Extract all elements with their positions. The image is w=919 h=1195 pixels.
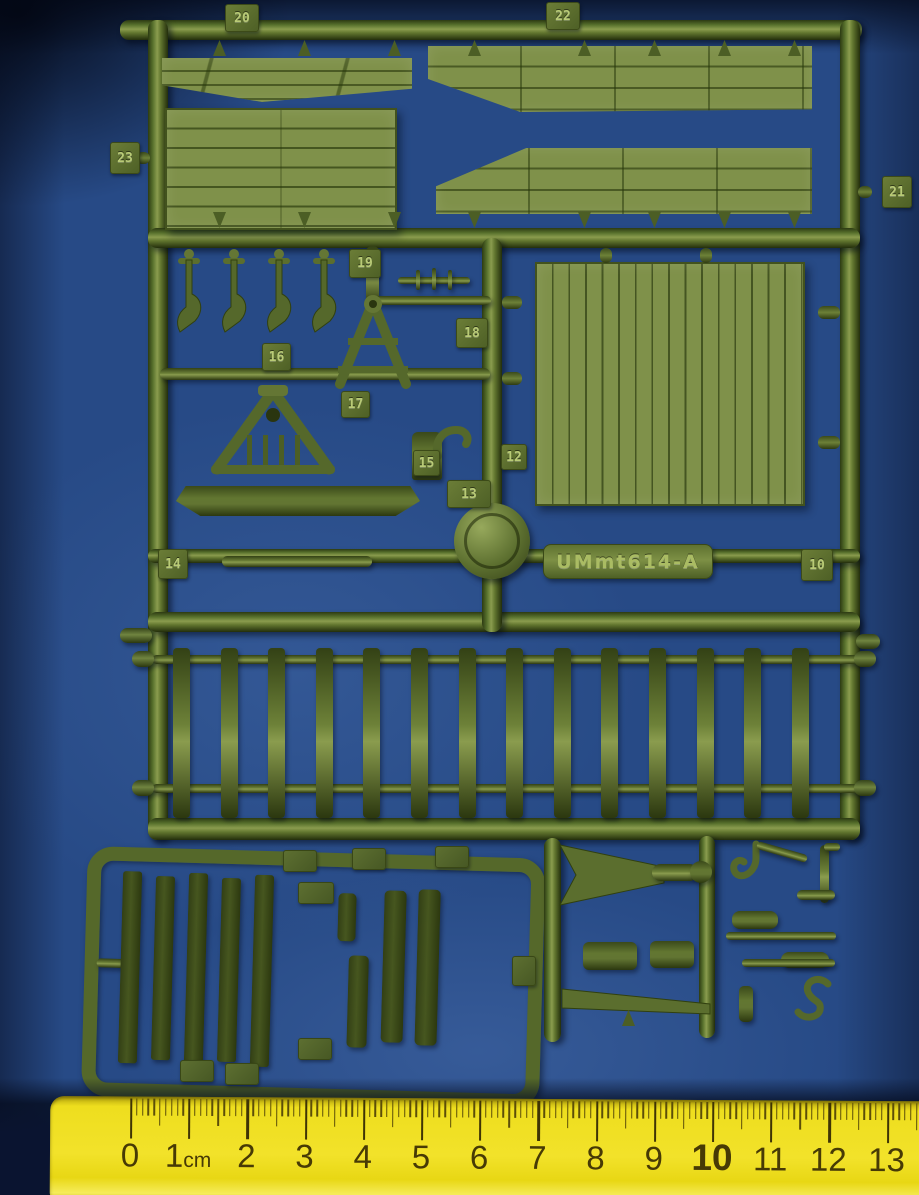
sprue-gate bbox=[388, 40, 401, 56]
ruler-tick bbox=[875, 1103, 876, 1120]
ruler-tick bbox=[241, 1099, 242, 1116]
ruler-tick bbox=[369, 1100, 370, 1117]
ruler-tick bbox=[206, 1099, 207, 1116]
ruler-tick bbox=[479, 1101, 481, 1141]
rod-part bbox=[726, 932, 836, 940]
wheel-part bbox=[454, 503, 530, 579]
ruler-tick bbox=[404, 1100, 405, 1117]
ruler-tick bbox=[229, 1099, 230, 1116]
ruler-tick bbox=[683, 1102, 685, 1129]
tail-board-part bbox=[162, 58, 412, 102]
ruler-tick bbox=[520, 1101, 521, 1118]
ruler-tick bbox=[532, 1101, 533, 1118]
part-number-tab-20: 20 bbox=[225, 4, 259, 32]
blank-number-tab bbox=[225, 1063, 259, 1085]
stringer-lug bbox=[854, 651, 876, 667]
rod-part bbox=[222, 556, 372, 567]
ruler-tick bbox=[491, 1101, 492, 1118]
ruler-tick bbox=[759, 1102, 760, 1119]
ruler-tick bbox=[811, 1103, 812, 1120]
splined-rod-tick bbox=[448, 270, 452, 290]
ruler-tick bbox=[293, 1099, 294, 1116]
ruler-tick bbox=[828, 1103, 830, 1143]
ruler-tick bbox=[893, 1103, 894, 1120]
part-number-tab-22: 22 bbox=[546, 2, 580, 30]
ruler-tick bbox=[549, 1101, 550, 1118]
blank-number-tab bbox=[512, 956, 536, 986]
sprue-stub bbox=[856, 634, 880, 649]
stake-part bbox=[744, 648, 761, 818]
ruler-tick bbox=[148, 1099, 149, 1116]
ruler-tick bbox=[497, 1101, 498, 1118]
ruler-tick bbox=[537, 1101, 539, 1141]
ruler-tick bbox=[613, 1101, 614, 1118]
ruler-tick bbox=[671, 1102, 672, 1119]
splined-rod-tick bbox=[416, 270, 420, 290]
stake-pocket-part bbox=[172, 250, 206, 334]
ruler-tick bbox=[363, 1100, 365, 1140]
ruler-tick bbox=[328, 1100, 329, 1117]
ruler-tick bbox=[794, 1103, 795, 1120]
ruler-tick bbox=[526, 1101, 527, 1118]
ruler: 01cm2345678910111213 bbox=[50, 1096, 919, 1195]
ruler-tick bbox=[788, 1103, 789, 1120]
stake-pocket-part bbox=[307, 250, 341, 334]
side-board-part-upper bbox=[428, 46, 812, 112]
ruler-tick bbox=[695, 1102, 696, 1119]
sprue-nub bbox=[818, 436, 840, 449]
splined-rod-tick bbox=[432, 268, 436, 290]
ruler-tick bbox=[130, 1098, 132, 1138]
channel-part-small bbox=[346, 955, 369, 1048]
bracket-flag bbox=[824, 843, 840, 851]
small-block-part bbox=[337, 893, 356, 941]
stake-part bbox=[268, 648, 285, 818]
ruler-tick bbox=[858, 1103, 860, 1130]
ruler-tick bbox=[357, 1100, 358, 1117]
ruler-tick bbox=[887, 1103, 889, 1143]
part-number-tab-12: 12 bbox=[501, 444, 527, 470]
ruler-tick bbox=[508, 1101, 510, 1128]
sprue-nub bbox=[858, 186, 872, 198]
block-part bbox=[650, 941, 694, 968]
ruler-tick bbox=[869, 1103, 870, 1120]
ruler-tick bbox=[444, 1100, 445, 1117]
ruler-tick bbox=[590, 1101, 591, 1118]
ruler-tick bbox=[223, 1099, 224, 1116]
wedge-part bbox=[562, 982, 710, 1016]
ruler-tick bbox=[666, 1102, 667, 1119]
ruler-tick bbox=[386, 1100, 387, 1117]
ruler-tick bbox=[474, 1101, 475, 1118]
ruler-tick bbox=[753, 1102, 754, 1119]
ruler-tick bbox=[380, 1100, 381, 1117]
ruler-tick bbox=[450, 1100, 452, 1127]
cluster-runner-left bbox=[544, 838, 561, 1042]
sprue-runner-3 bbox=[148, 612, 860, 632]
blank-number-tab bbox=[435, 846, 469, 868]
sprue-nub bbox=[502, 296, 522, 309]
ruler-tick bbox=[718, 1102, 719, 1119]
ruler-tick bbox=[596, 1101, 598, 1141]
stake-part bbox=[459, 648, 476, 818]
stringer-lug bbox=[132, 651, 154, 667]
ruler-tick bbox=[864, 1103, 865, 1120]
stringer-lug bbox=[132, 780, 154, 796]
rod-part bbox=[742, 959, 835, 967]
ruler-tick bbox=[316, 1100, 317, 1117]
photo-of-model-kit-sprue: UMmt614-A 01cm2345678910111213 2 bbox=[0, 0, 919, 1195]
ruler-tick bbox=[735, 1102, 736, 1119]
ruler-tick bbox=[770, 1102, 772, 1142]
part-number-tab-14: 14 bbox=[158, 549, 188, 579]
stake-part bbox=[506, 648, 523, 818]
ruler-tick bbox=[648, 1102, 649, 1119]
part-number-tab-16: 16 bbox=[262, 343, 291, 371]
ruler-tick bbox=[171, 1099, 172, 1116]
channel-part bbox=[414, 889, 440, 1046]
ruler-tick bbox=[602, 1101, 603, 1118]
ruler-tick bbox=[299, 1100, 300, 1117]
hitch-knob bbox=[690, 861, 712, 883]
stake-pocket-part bbox=[262, 250, 296, 334]
blank-number-tab bbox=[298, 882, 334, 904]
wall-panel-part bbox=[535, 262, 805, 506]
ruler-tick bbox=[351, 1100, 352, 1117]
ruler-tick bbox=[258, 1099, 259, 1116]
part-number-tab-13: 13 bbox=[447, 480, 491, 508]
boat-shaped-part bbox=[176, 486, 420, 516]
ruler-tick bbox=[177, 1099, 178, 1116]
stake-part bbox=[411, 648, 428, 818]
ruler-tick bbox=[433, 1100, 434, 1117]
stake-part bbox=[554, 648, 571, 818]
ruler-tick bbox=[410, 1100, 411, 1117]
ruler-tick bbox=[183, 1099, 184, 1116]
sprue-runner-bottom bbox=[148, 818, 860, 840]
ruler-tick bbox=[287, 1099, 288, 1116]
stake-part bbox=[601, 648, 618, 818]
ruler-tick bbox=[188, 1099, 190, 1139]
ruler-tick bbox=[270, 1099, 271, 1116]
stake-part bbox=[697, 648, 714, 818]
ruler-tick bbox=[846, 1103, 847, 1120]
ruler-tick bbox=[631, 1102, 632, 1119]
ruler-tick bbox=[677, 1102, 678, 1119]
ruler-tick bbox=[799, 1103, 801, 1130]
part-number-tab-18: 18 bbox=[456, 318, 488, 348]
ruler-tick bbox=[276, 1099, 278, 1126]
ruler-tick bbox=[485, 1101, 486, 1118]
ruler-tick bbox=[805, 1103, 806, 1120]
blank-number-tab bbox=[298, 1038, 332, 1060]
ruler-tick bbox=[235, 1099, 236, 1116]
stringer-lug bbox=[854, 780, 876, 796]
stake-pocket-part bbox=[217, 250, 251, 334]
part-number-tab-23: 23 bbox=[110, 142, 140, 174]
ruler-tick bbox=[503, 1101, 504, 1118]
stake-part bbox=[363, 648, 380, 818]
ruler-tick bbox=[427, 1100, 428, 1117]
ruler-tick bbox=[834, 1103, 835, 1120]
ruler-tick bbox=[741, 1102, 743, 1129]
ruler-tick bbox=[916, 1103, 918, 1130]
sprue-nub bbox=[502, 372, 522, 385]
ruler-tick bbox=[904, 1103, 905, 1120]
ruler-tick bbox=[246, 1099, 248, 1139]
ruler-tick bbox=[456, 1100, 457, 1117]
ruler-tick bbox=[625, 1102, 627, 1129]
s-hook-part bbox=[792, 976, 832, 1020]
sprue-gate bbox=[718, 212, 731, 228]
ruler-label-13: 13 bbox=[846, 1141, 919, 1179]
ruler-tick bbox=[747, 1102, 748, 1119]
ruler-tick bbox=[898, 1103, 899, 1120]
blank-number-tab bbox=[352, 848, 386, 870]
ruler-tick bbox=[282, 1099, 283, 1116]
ruler-tick bbox=[322, 1100, 323, 1117]
ruler-tick bbox=[701, 1102, 702, 1119]
ruler-tick bbox=[852, 1103, 853, 1120]
ruler-tick bbox=[555, 1101, 556, 1118]
ruler-tick bbox=[573, 1101, 574, 1118]
ruler-tick bbox=[561, 1101, 562, 1118]
ruler-tick bbox=[334, 1100, 336, 1127]
sprue-gate bbox=[298, 40, 311, 56]
stake-part bbox=[792, 648, 809, 818]
ruler-tick bbox=[194, 1099, 195, 1116]
muffler-part bbox=[732, 911, 778, 929]
ruler-tick bbox=[584, 1101, 585, 1118]
ruler-tick bbox=[153, 1099, 154, 1116]
ruler-tick bbox=[706, 1102, 707, 1119]
sprue-gate bbox=[213, 40, 226, 56]
sprue-runner-right bbox=[840, 20, 860, 840]
ruler-tick bbox=[159, 1099, 161, 1126]
plank-panel-part bbox=[165, 108, 397, 230]
ruler-tick bbox=[462, 1101, 463, 1118]
ruler-tick bbox=[637, 1102, 638, 1119]
sprue-gate bbox=[648, 212, 661, 228]
ruler-tick bbox=[421, 1100, 423, 1140]
stake-part bbox=[221, 648, 238, 818]
ruler-tick bbox=[578, 1101, 579, 1118]
part-number-tab-19: 19 bbox=[349, 249, 381, 278]
ruler-tick bbox=[910, 1103, 911, 1120]
ruler-tick bbox=[439, 1100, 440, 1117]
ruler-tick bbox=[607, 1101, 608, 1118]
ruler-tick bbox=[375, 1100, 376, 1117]
ruler-tick bbox=[567, 1101, 569, 1128]
sprue-runner-2 bbox=[148, 228, 860, 248]
ruler-tick bbox=[165, 1099, 166, 1116]
ruler-tick bbox=[817, 1103, 818, 1120]
ruler-tick bbox=[654, 1102, 656, 1142]
blank-number-tab bbox=[283, 850, 317, 872]
flanged-bar-part bbox=[797, 890, 835, 900]
part-number-tab-10: 10 bbox=[801, 549, 833, 581]
mini-runner-horizontal bbox=[160, 368, 490, 380]
sprue-gate bbox=[578, 212, 591, 228]
part-number-tab-21: 21 bbox=[882, 176, 912, 208]
ruler-tick bbox=[340, 1100, 341, 1117]
clevis-part bbox=[739, 986, 753, 1022]
sprue-nub bbox=[818, 306, 840, 319]
sprue-nub bbox=[700, 248, 712, 263]
ruler-tick bbox=[200, 1099, 201, 1116]
ruler-tick bbox=[311, 1100, 312, 1117]
ruler-tick bbox=[392, 1100, 394, 1127]
channel-part bbox=[381, 890, 407, 1043]
sprue-gate bbox=[468, 212, 481, 228]
block-part bbox=[583, 942, 637, 970]
ruler-tick bbox=[543, 1101, 544, 1118]
ruler-tick bbox=[765, 1102, 766, 1119]
ruler-tick bbox=[660, 1102, 661, 1119]
blank-number-tab bbox=[180, 1060, 214, 1082]
ruler-tick bbox=[346, 1100, 347, 1117]
ruler-tick bbox=[305, 1100, 307, 1140]
stake-part bbox=[316, 648, 333, 818]
part-number-tab-17: 17 bbox=[341, 391, 370, 418]
ruler-tick bbox=[514, 1101, 515, 1118]
side-board-part-lower bbox=[436, 148, 812, 214]
ruler-tick bbox=[252, 1099, 253, 1116]
ruler-tick bbox=[823, 1103, 824, 1120]
a-frame-support-part bbox=[328, 294, 418, 390]
ruler-tick bbox=[136, 1099, 137, 1116]
ruler-tick bbox=[689, 1102, 690, 1119]
sprue-nub bbox=[600, 248, 612, 263]
ruler-tick bbox=[724, 1102, 725, 1119]
sprue-gate bbox=[788, 212, 801, 228]
bogie-frame-part bbox=[203, 385, 343, 483]
ruler-tick bbox=[619, 1101, 620, 1118]
stake-part bbox=[173, 648, 190, 818]
stake-part bbox=[649, 648, 666, 818]
ruler-tick bbox=[468, 1101, 469, 1118]
ruler-tick bbox=[881, 1103, 882, 1120]
sprue-stub bbox=[120, 628, 152, 643]
ruler-tick bbox=[415, 1100, 416, 1117]
mold-plate: UMmt614-A bbox=[543, 544, 713, 579]
ruler-tick bbox=[782, 1102, 783, 1119]
ruler-tick bbox=[776, 1102, 777, 1119]
ruler-tick bbox=[840, 1103, 841, 1120]
ruler-tick bbox=[217, 1099, 219, 1126]
part-number-tab-15: 15 bbox=[413, 450, 440, 476]
ruler-tick bbox=[264, 1099, 265, 1116]
ruler-tick bbox=[642, 1102, 643, 1119]
ruler-tick bbox=[730, 1102, 731, 1119]
ruler-tick bbox=[212, 1099, 213, 1116]
ruler-tick bbox=[398, 1100, 399, 1117]
ruler-tick bbox=[142, 1099, 143, 1116]
